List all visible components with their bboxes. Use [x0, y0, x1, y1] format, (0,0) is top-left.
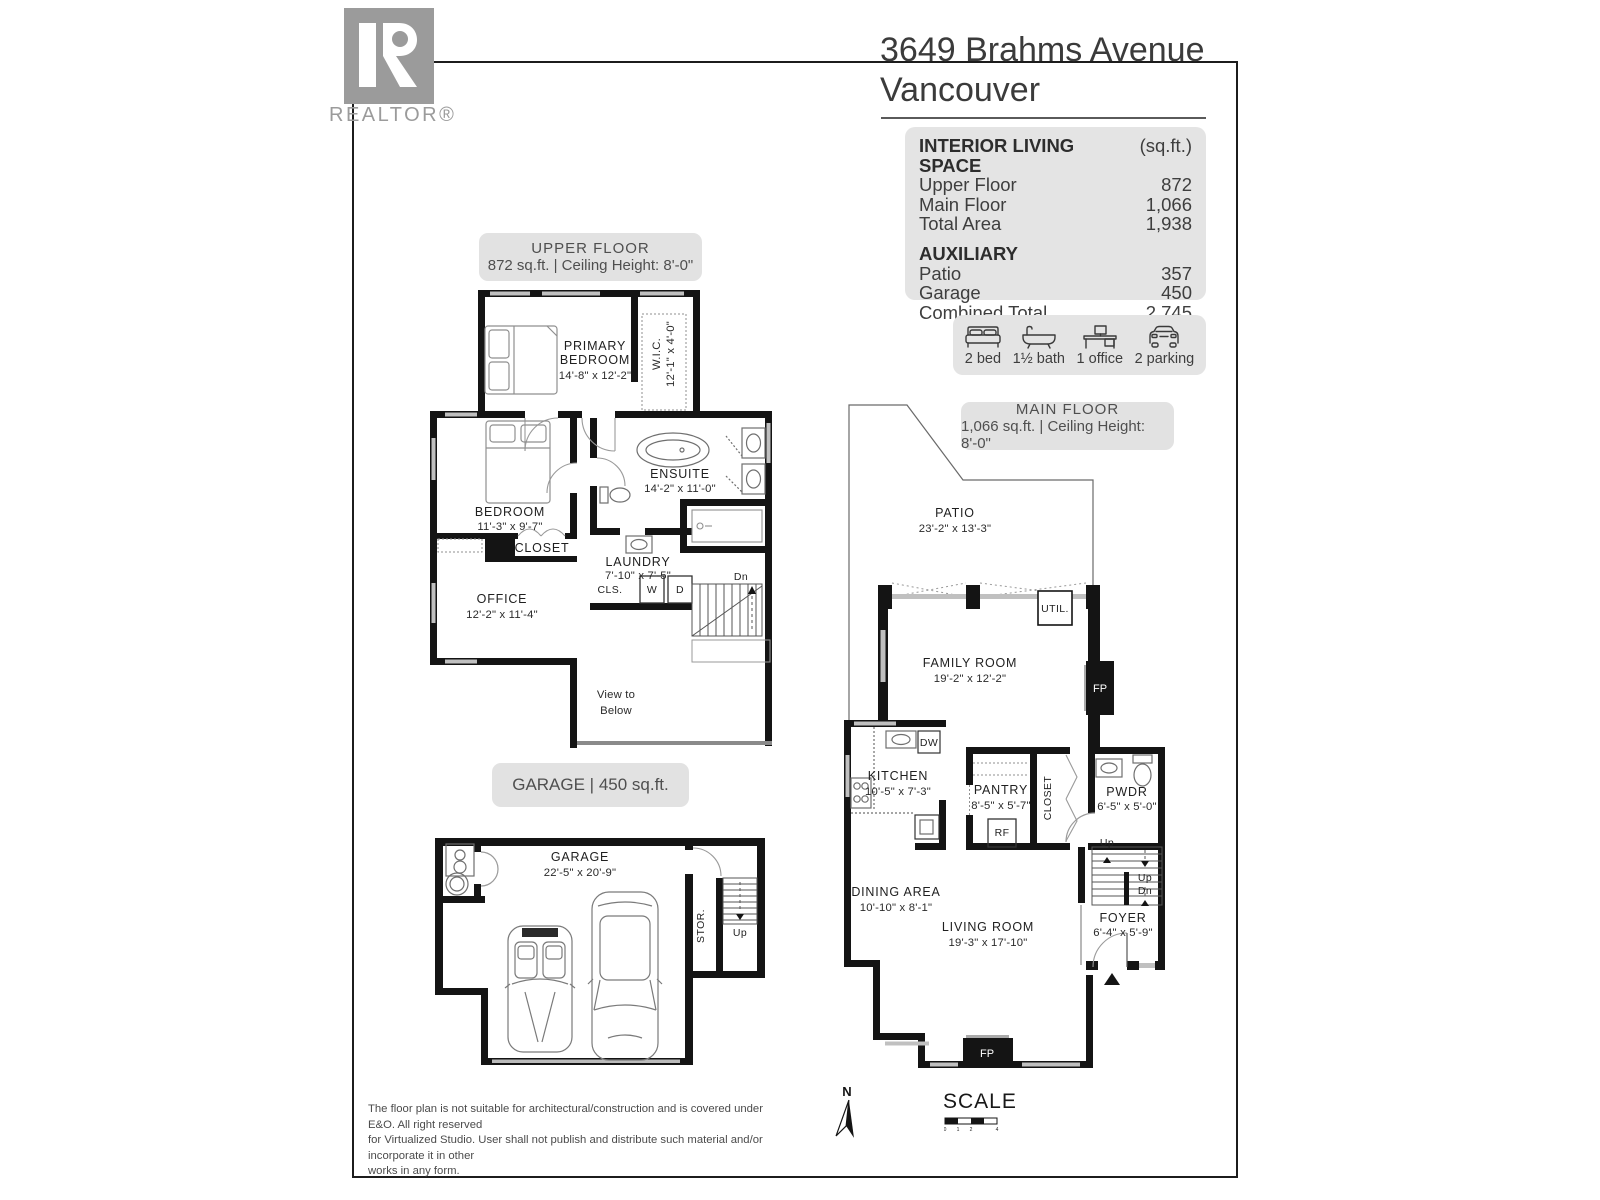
feature-parking: 2 parking [1135, 324, 1195, 367]
dryer-label: D [676, 584, 684, 596]
area-stats-card: INTERIOR LIVING SPACE (sq.ft.) Upper Flo… [905, 127, 1206, 300]
address-line2: Vancouver [880, 70, 1210, 110]
kitchen-dims: 10'-5" x 7'-3" [865, 786, 931, 798]
closet-bifold [1066, 755, 1077, 841]
stairs-down [692, 584, 770, 662]
pantry-label: PANTRY [974, 783, 1028, 797]
ensuite-sinks [726, 428, 765, 494]
ensuite-label: ENSUITE [650, 467, 710, 481]
util-label: UTIL. [1041, 603, 1069, 615]
fp-bottom-label: FP [980, 1048, 994, 1060]
scale-tick: 4 [996, 1127, 999, 1133]
title-divider [881, 117, 1206, 119]
stat-value: 1,938 [1146, 214, 1192, 234]
garage-up-label: Up [733, 927, 747, 939]
dn-label: Dn [734, 571, 748, 583]
feature-office: 1 office [1077, 324, 1124, 367]
upper-floor-pill-subtitle: 872 sq.ft. | Ceiling Height: 8'-0" [488, 257, 694, 274]
laundry-dims: 7'-10" x 7'-5" [605, 570, 671, 582]
entry-door [1093, 933, 1127, 985]
address-line1: 3649 Brahms Avenue [880, 30, 1210, 70]
pantry-dims: 8'-5" x 5'-7" [971, 800, 1031, 812]
page-title: 3649 Brahms Avenue Vancouver [880, 30, 1210, 110]
north-arrow: N [828, 1083, 868, 1143]
cls-label: CLS. [598, 584, 623, 596]
stat-value: 872 [1161, 175, 1192, 195]
bedroom-dims: 11'-3" x 9'-7" [477, 521, 542, 533]
interior-unit: (sq.ft.) [1140, 136, 1192, 175]
garage-door-arc [693, 848, 721, 876]
living-dims: 19'-3" x 17'-10" [949, 937, 1028, 949]
upper-floor-pill-title: UPPER FLOOR [531, 240, 650, 257]
disclaimer-text: The floor plan is not suitable for archi… [368, 1102, 770, 1180]
feature-label: 1 office [1077, 351, 1124, 367]
ensuite-dims: 14'-2" x 11'-0" [644, 483, 716, 495]
garage-pill: GARAGE | 450 sq.ft. [492, 763, 689, 807]
family-room-dims: 19'-2" x 12'-2" [934, 673, 1006, 685]
shower [692, 510, 762, 542]
feature-label: 1½ bath [1013, 351, 1065, 367]
stat-row: Total Area 1,938 [919, 214, 1192, 234]
primary-bedroom-label: PRIMARY [564, 339, 626, 353]
feature-label: 2 parking [1135, 351, 1195, 367]
sports-car [505, 926, 575, 1052]
primary-bed [485, 326, 557, 394]
stat-label: Upper Floor [919, 175, 1017, 195]
bed-icon [965, 324, 1001, 350]
feature-bed: 2 bed [965, 324, 1001, 367]
garage-dims: 22'-5" x 20'-9" [544, 867, 616, 879]
realtor-logo [344, 8, 434, 104]
wic-dims: 12'-1" x 4'-0" [665, 321, 677, 387]
interior-heading: INTERIOR LIVING SPACE [919, 136, 1140, 175]
scale-label: SCALE [943, 1090, 1017, 1114]
garage-pill-title: GARAGE | 450 sq.ft. [512, 775, 669, 795]
closet-label: CLOSET [515, 541, 570, 555]
laundry-sink [626, 536, 652, 553]
stat-value: 1,066 [1146, 195, 1192, 215]
main-dn-label: Dn [1138, 885, 1152, 897]
stor-label: STOR. [695, 909, 707, 943]
north-label: N [842, 1084, 851, 1099]
stat-row: Garage 450 [919, 283, 1192, 303]
feature-label: 2 bed [965, 351, 1001, 367]
feature-bath: 1½ bath [1013, 324, 1065, 367]
fp-top-label: FP [1093, 683, 1107, 695]
dining-label: DINING AREA [851, 885, 940, 899]
office-dims: 12'-2" x 11'-4" [466, 609, 538, 621]
scale-tick: 1 [957, 1127, 960, 1133]
wic-shelves [642, 314, 686, 410]
dining-dims: 10'-10" x 8'-1" [860, 902, 932, 914]
main-closet-label: CLOSET [1042, 776, 1054, 821]
primary-bedroom-dims: 14'-8" x 12'-2" [559, 370, 631, 382]
upper-floor-plan: PRIMARY BEDROOM 14'-8" x 12'-2" W.I.C. 1… [430, 288, 772, 750]
stat-label: Patio [919, 264, 961, 284]
scale-bar: 0 1 2 4 [944, 1117, 1002, 1133]
stat-label: Garage [919, 283, 981, 303]
stat-label: Total Area [919, 214, 1001, 234]
garage-door-strip [492, 1060, 680, 1064]
parking-icon [1146, 324, 1182, 350]
realtor-logo-label: REALTOR® [329, 104, 459, 127]
svg-text:BEDROOM: BEDROOM [560, 353, 630, 367]
interior-heading-row: INTERIOR LIVING SPACE (sq.ft.) [919, 136, 1192, 175]
stat-value: 357 [1161, 264, 1192, 284]
bedroom-label: BEDROOM [475, 505, 545, 519]
garage-stairs [723, 878, 757, 924]
entry-arrow [1104, 973, 1120, 985]
svg-text:Below: Below [600, 705, 632, 717]
toilet [600, 487, 630, 503]
office-label: OFFICE [477, 592, 528, 606]
scale-tick: 2 [970, 1127, 973, 1133]
stat-value: 450 [1161, 283, 1192, 303]
garage-label: GARAGE [551, 850, 609, 864]
ensuite-tub [637, 433, 709, 467]
auxiliary-heading: AUXILIARY [919, 244, 1018, 264]
bedroom-closet-shelf [438, 539, 482, 552]
upper-floor-pill: UPPER FLOOR 872 sq.ft. | Ceiling Height:… [479, 233, 702, 281]
rf-label: RF [995, 827, 1010, 839]
pwdr-label: PWDR [1106, 785, 1147, 799]
washer-label: W [647, 584, 657, 596]
office-icon [1082, 324, 1118, 350]
stat-label: Main Floor [919, 195, 1006, 215]
stat-row: Patio 357 [919, 264, 1192, 284]
garage-closet [446, 844, 498, 895]
living-label: LIVING ROOM [942, 920, 1034, 934]
auxiliary-heading-row: AUXILIARY [919, 244, 1192, 264]
view-below-label: View to [597, 689, 635, 701]
svg-text:Up: Up [1138, 872, 1152, 884]
pwdr-dims: 6'-5" x 5'-0" [1097, 801, 1157, 813]
main-floor-plan: PATIO 23'-2" x 13'-3" UTIL. FAMILY ROOM … [830, 395, 1182, 1087]
kitchen-label: KITCHEN [868, 769, 928, 783]
bedroom-bed [486, 421, 550, 503]
stat-row: Upper Floor 872 [919, 175, 1192, 195]
stat-row: Main Floor 1,066 [919, 195, 1192, 215]
dw-label: DW [920, 737, 938, 749]
foyer-label: FOYER [1099, 911, 1146, 925]
wic-label: W.I.C. [651, 338, 663, 370]
patio-dims: 23'-2" x 13'-3" [919, 523, 991, 535]
sedan-car [588, 892, 662, 1060]
bath-icon [1021, 324, 1057, 350]
features-card: 2 bed 1½ bath 1 office 2 parking [953, 315, 1206, 375]
realtor-logo-icon [344, 8, 434, 104]
garage-floor-plan: GARAGE 22'-5" x 20'-9" STOR. Up [430, 830, 775, 1075]
scale-tick: 0 [944, 1127, 947, 1133]
foyer-dims: 6'-4" x 5'-9" [1093, 927, 1153, 939]
up-label: Up [1100, 837, 1114, 849]
family-room-label: FAMILY ROOM [923, 656, 1017, 670]
main-stairs [1081, 847, 1162, 965]
laundry-label: LAUNDRY [605, 555, 670, 569]
patio-label: PATIO [935, 506, 975, 520]
